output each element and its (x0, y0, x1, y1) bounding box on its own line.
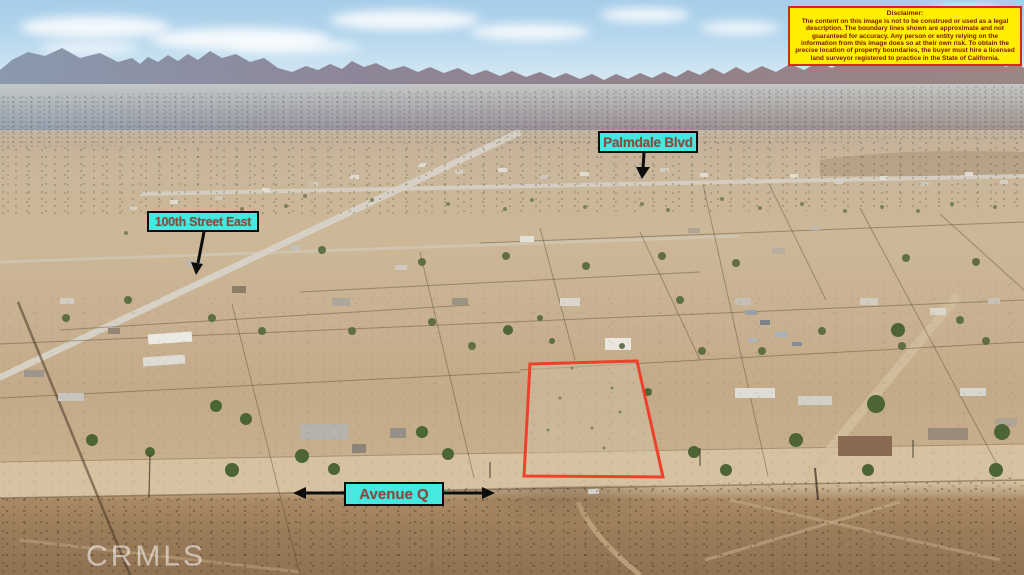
arrow-right-icon (482, 487, 495, 499)
street-label-palmdale-blvd: Palmdale Blvd (598, 131, 698, 153)
crmls-watermark: CRMLS (86, 541, 206, 573)
arrow-down-icon (191, 262, 203, 275)
street-label-avenue-q: Avenue Q (344, 482, 444, 506)
disclaimer-box: Disclaimer: The content on this image is… (788, 6, 1022, 66)
aerial-photo: Disclaimer: The content on this image is… (0, 0, 1024, 575)
disclaimer-title: Disclaimer: (794, 10, 1016, 18)
arrow-down-icon (636, 167, 650, 179)
disclaimer-body: The content on this image is not to be c… (794, 18, 1016, 62)
arrow-left-icon (293, 487, 306, 499)
arrow-heads (191, 167, 650, 499)
street-label-100th-street-east: 100th Street East (147, 211, 259, 232)
annotations (0, 0, 1024, 575)
100th-street-arrow-shaft (198, 232, 204, 263)
palmdale-arrow-shaft (643, 153, 644, 168)
arrow-lines (198, 153, 644, 493)
property-boundary (524, 361, 663, 477)
